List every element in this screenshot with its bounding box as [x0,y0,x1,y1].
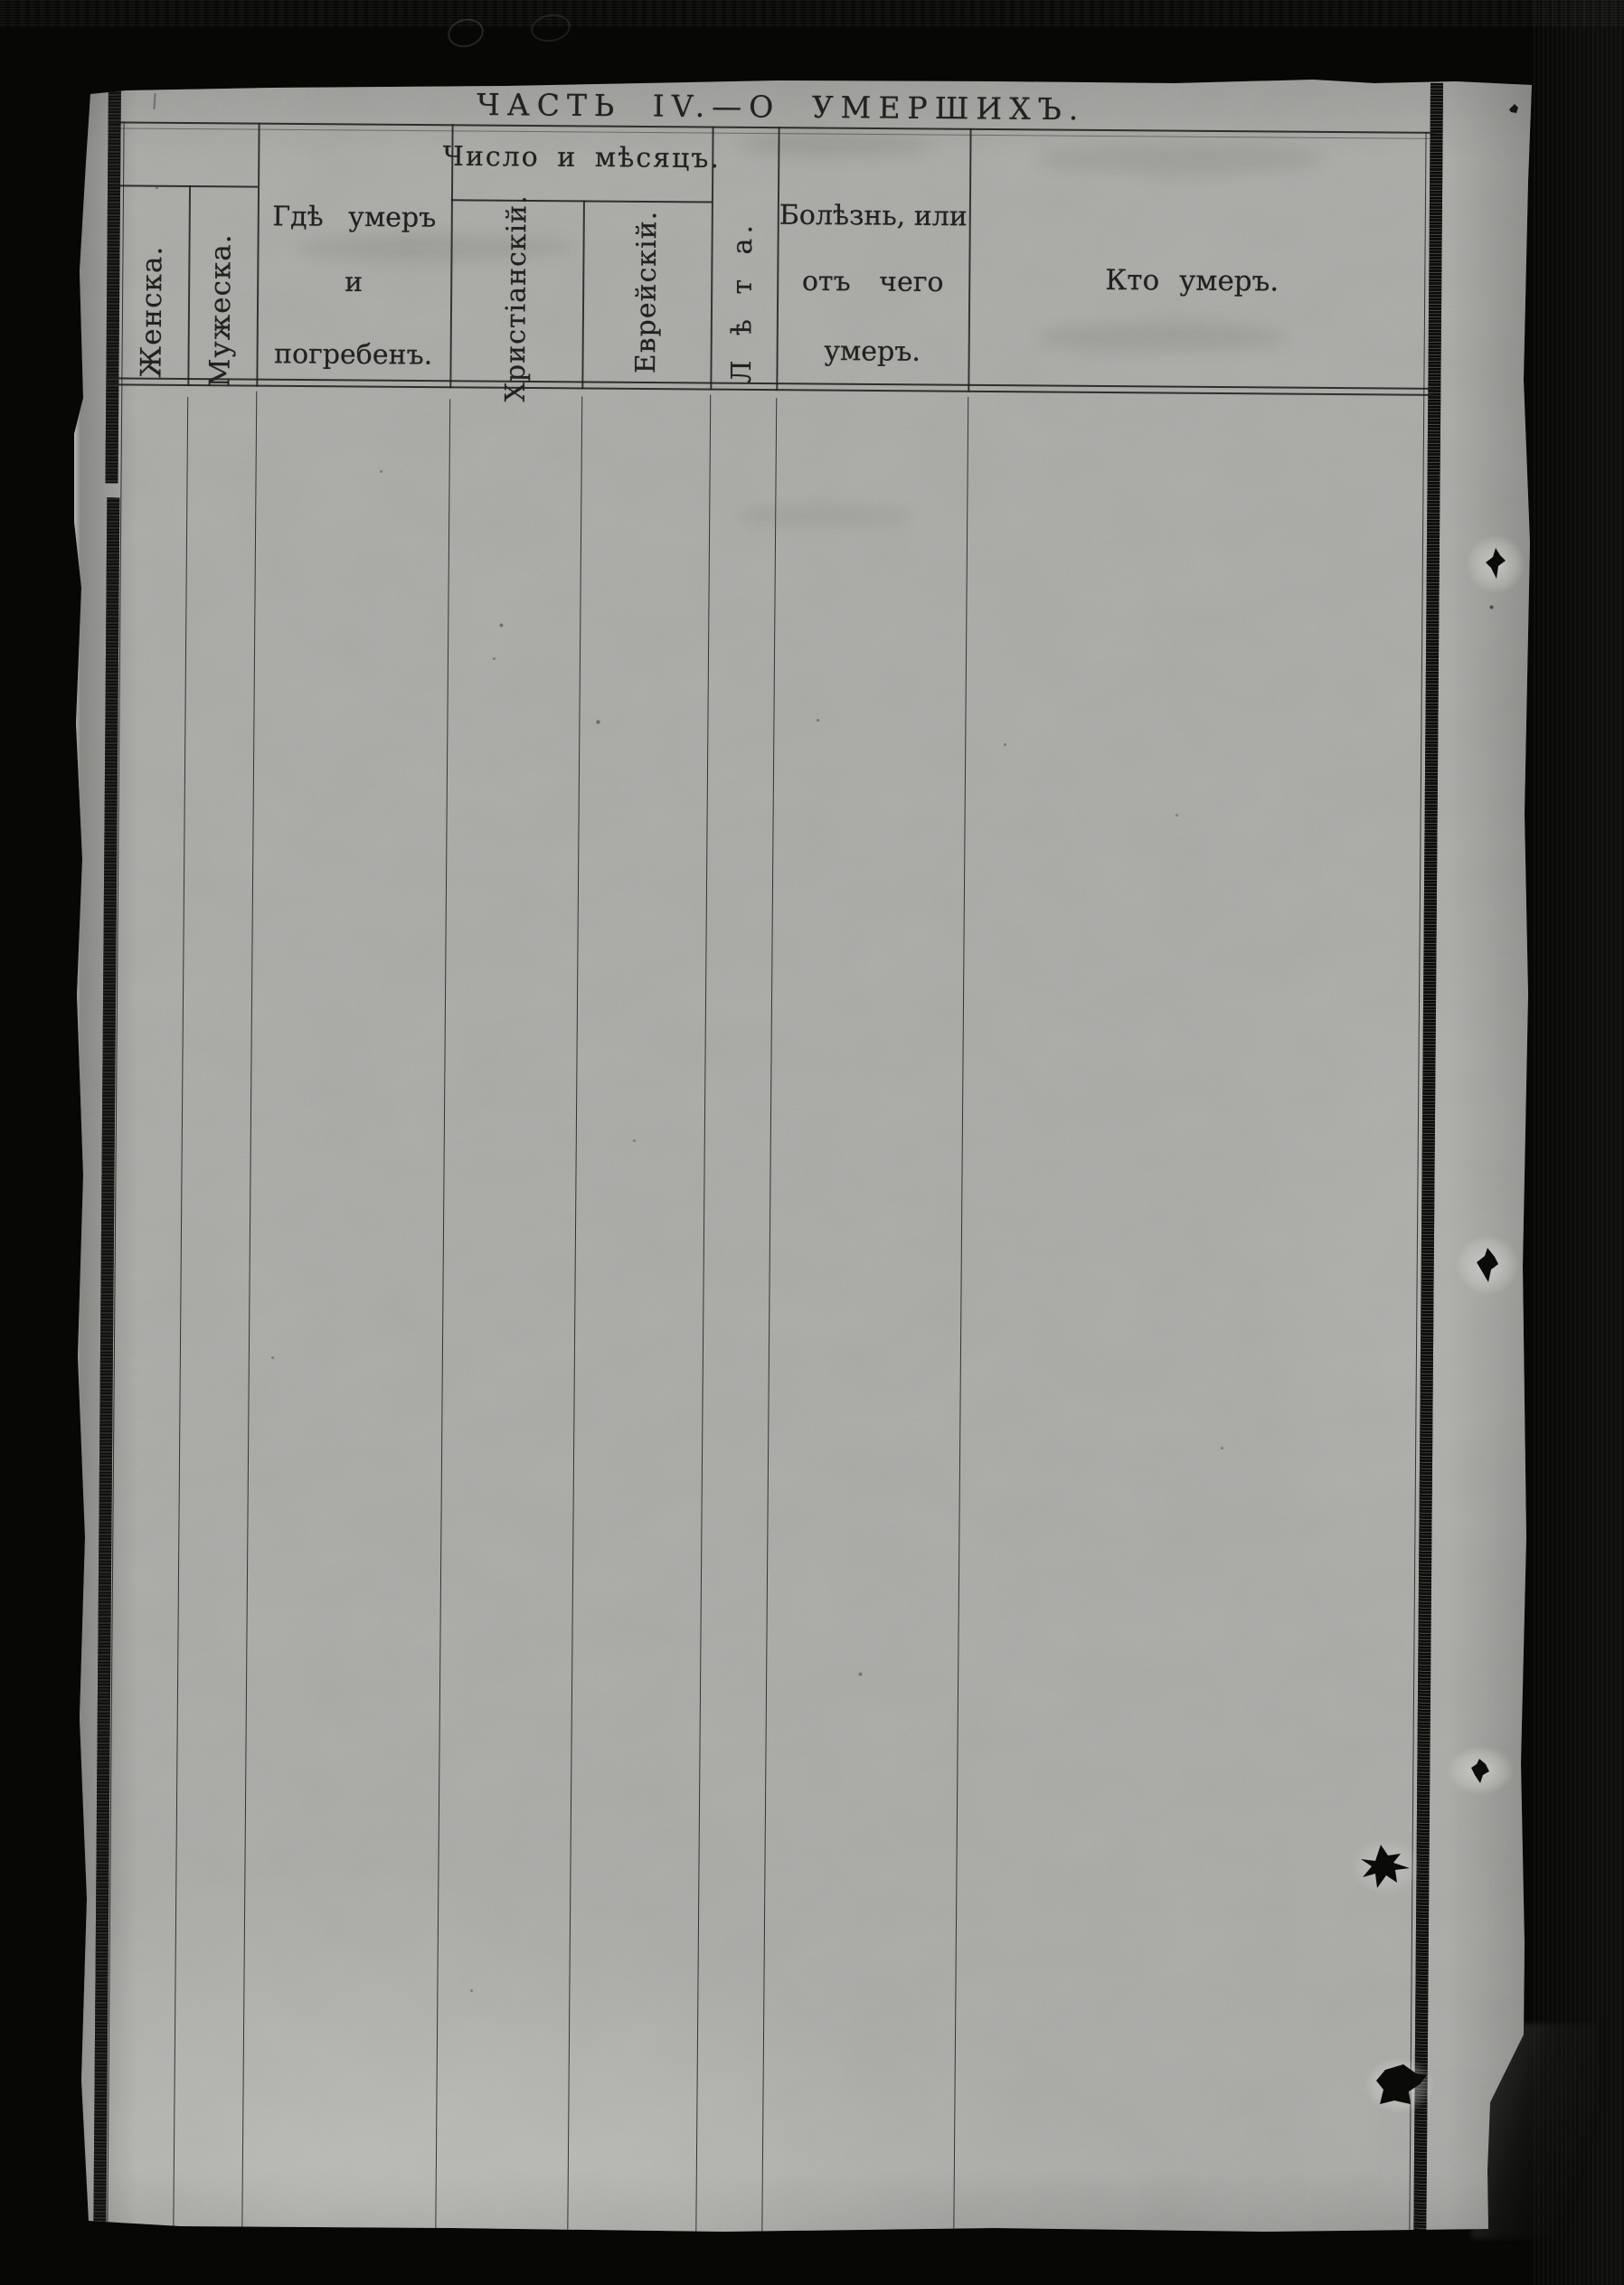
wormhole [1471,1759,1489,1783]
divider-illness-who-header [968,128,971,392]
column-header-male: Мужеска. [203,233,237,387]
column-header-illness-line2: отъ чего [802,266,944,298]
wormhole [1486,548,1506,581]
table-body-empty [108,385,1422,2238]
scanned-register-page: ЧАСТЬ IV.—О УМЕРШИХЪ. [0,0,1624,2285]
printed-table: ЧАСТЬ IV.—О УМЕРШИХЪ. [57,78,1534,2245]
column-header-who-died: Кто умеръ. [1105,264,1279,298]
column-header-date-group: Число и мѣсяцъ. [443,141,722,175]
wormhole [1477,1248,1498,1282]
column-header-illness-line3: умеръ. [824,335,921,368]
table-outer-border-left [105,72,121,483]
page-title: ЧАСТЬ IV.—О УМЕРШИХЪ. [477,87,1085,127]
paper-page: ЧАСТЬ IV.—О УМЕРШИХЪ. [74,78,1534,2233]
column-header-christian: Христіанскій. [500,194,533,401]
paper-fleck [1507,104,1518,113]
divider-age-illness-header [776,127,779,391]
column-header-illness-line1: Болѣзнь, или [779,200,968,233]
scan-fabric-texture-top [0,0,1624,27]
divider-christian-jewish-header [581,200,584,389]
column-header-jewish: Еврейскій. [630,211,663,374]
date-group-underline [451,199,712,203]
column-header-where-line3: погребенъ. [274,338,432,371]
column-header-female: Женска. [135,246,168,378]
column-header-age: Л ѣ т а. [726,221,759,383]
paper-flecks [74,78,77,80]
divider-female-male-header [187,185,190,386]
scan-fabric-texture-right [1534,0,1624,2285]
star-shaped-wormhole [1361,1845,1410,1888]
wormhole [1376,2064,1427,2106]
column-header-where-line2: и [345,267,363,298]
divider-male-where-header [256,123,260,387]
column-header-where-line1: Гдѣ умеръ [272,201,436,233]
